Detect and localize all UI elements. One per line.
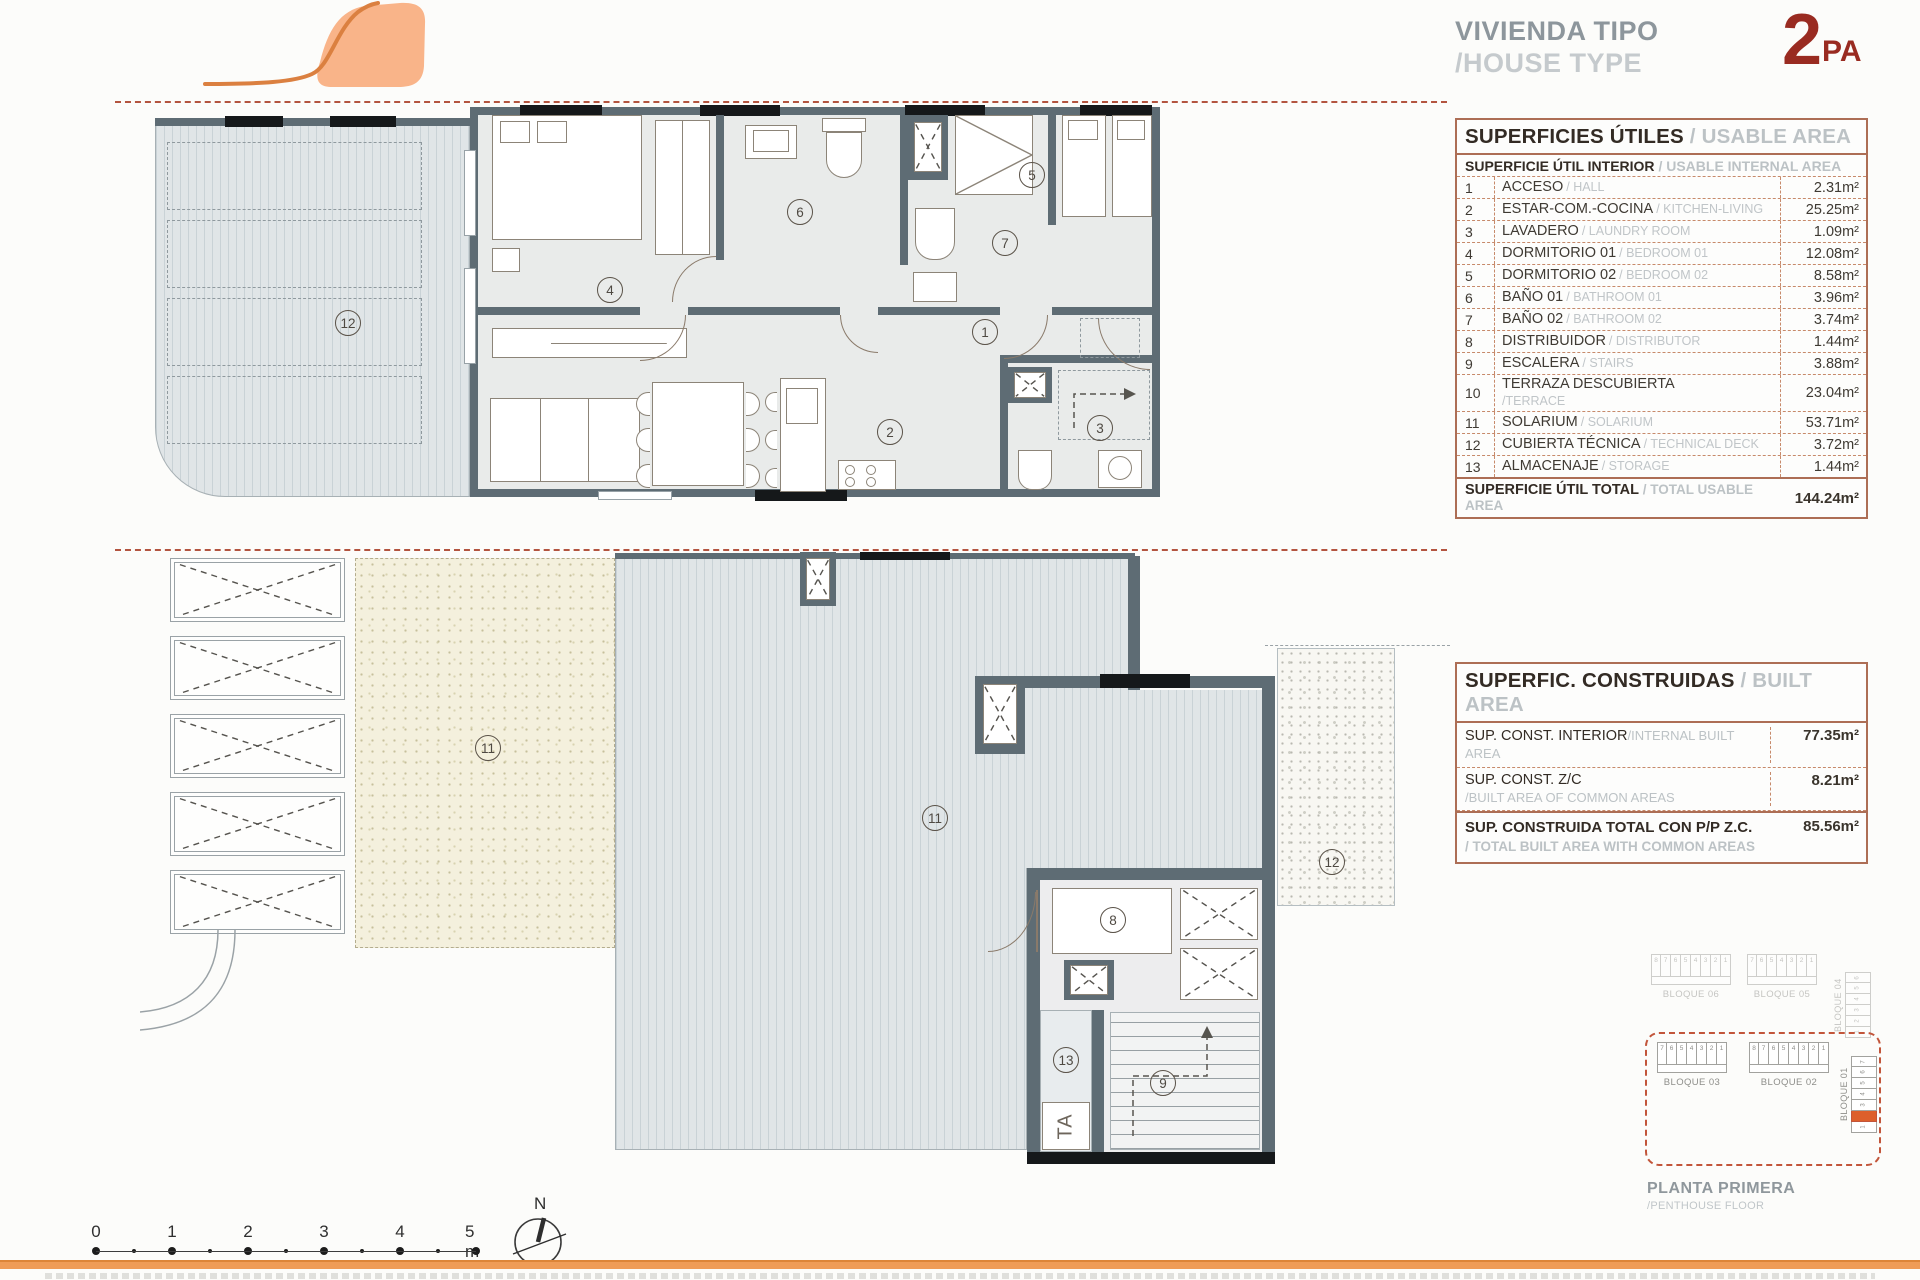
room-area: 25.25m²	[1780, 199, 1866, 220]
wall	[1027, 868, 1040, 1160]
unit-cell: 5	[1681, 954, 1691, 977]
room-badge-1: 1	[972, 319, 998, 345]
room-area: 2.31m²	[1780, 177, 1866, 198]
usable-area-row-13: 13ALMACENAJE/ STORAGE1.44m²	[1457, 456, 1866, 477]
unit-cell: 3	[1845, 1005, 1871, 1016]
solar-panel-outline	[167, 298, 422, 366]
scale-bar: 012345 m	[88, 1222, 498, 1262]
unit-cell: 3	[1799, 1042, 1809, 1065]
stair-arrow	[1115, 1018, 1255, 1146]
pergola-bay	[170, 870, 345, 934]
solarium-deck-area	[615, 690, 1263, 868]
window-band	[1100, 674, 1190, 688]
door-leaf	[1036, 890, 1038, 952]
house-type-title-en: /HOUSE TYPE	[1455, 48, 1642, 79]
wall	[1128, 556, 1140, 690]
pergola-bay-cross	[174, 796, 341, 852]
table-title-es: SUPERFICIES ÚTILES	[1465, 125, 1684, 148]
dining-chair	[746, 464, 760, 488]
unit-cell: 2	[1797, 954, 1807, 977]
key-plan-caption-es: PLANTA PRIMERA	[1647, 1180, 1795, 1198]
window	[464, 268, 476, 364]
usable-area-row-5: 5DORMITORIO 02/ BEDROOM 028.58m²	[1457, 265, 1866, 287]
unit-cell: 4	[1845, 994, 1871, 1005]
block-02: 87654321BLOQUE 02	[1749, 1042, 1829, 1088]
built-label: SUP. CONST. Z/C/BUILT AREA OF COMMON ARE…	[1457, 772, 1770, 806]
scale-tick-label: 0	[91, 1222, 100, 1242]
pergola-bay-cross	[174, 640, 341, 696]
room-badge-9: 9	[1150, 1070, 1176, 1096]
window-band	[905, 105, 985, 116]
stair-void-cross	[1180, 888, 1258, 940]
shaft-cross	[1070, 965, 1108, 995]
built-value: 77.35m²	[1770, 727, 1866, 763]
unit-cell: 5	[1851, 1078, 1877, 1089]
pergola-bay	[170, 636, 345, 700]
burner	[866, 477, 876, 487]
solarium-deck-area	[615, 558, 1135, 691]
shower	[955, 115, 1033, 195]
scale-tick-label: 2	[243, 1222, 252, 1242]
wall	[1027, 868, 1275, 880]
scale-line	[96, 1251, 476, 1252]
pergola-bay-cross	[174, 874, 341, 930]
row-number: 11	[1457, 412, 1495, 433]
pillow	[1117, 120, 1145, 140]
total-label-es: SUPERFICIE ÚTIL TOTAL	[1465, 482, 1639, 498]
unit-cell: 5	[1779, 1042, 1789, 1065]
block-label: BLOQUE 05	[1747, 989, 1817, 1000]
room-badge-11-sand: 11	[475, 735, 501, 761]
window-band	[225, 116, 283, 127]
pergola-bay	[170, 714, 345, 778]
key-plan-caption-en: /PENTHOUSE FLOOR	[1647, 1200, 1764, 1212]
unit-cell: 5	[1845, 983, 1871, 994]
washer-drum	[1108, 456, 1132, 480]
dining-chair	[746, 428, 760, 452]
row-number: 12	[1457, 434, 1495, 455]
ventilation-shaft	[908, 115, 948, 180]
wall	[155, 118, 470, 126]
bed	[492, 115, 642, 240]
bed	[1112, 115, 1152, 217]
usable-area-row-9: 9ESCALERA/ STAIRS3.88m²	[1457, 353, 1866, 375]
distributor-room	[1052, 888, 1172, 954]
wall	[1262, 676, 1275, 1160]
pillow	[1068, 120, 1098, 140]
usable-area-row-12: 12CUBIERTA TÉCNICA/ TECHNICAL DECK3.72m²	[1457, 434, 1866, 456]
row-number: 4	[1457, 243, 1495, 264]
usable-area-table: SUPERFICIES ÚTILES / USABLE AREA SUPERFI…	[1455, 118, 1868, 519]
wall-band	[1027, 1152, 1275, 1164]
unit-cell: 7	[1759, 1042, 1769, 1065]
room-name: LAVADERO/ LAUNDRY ROOM	[1495, 222, 1780, 241]
pillow	[537, 121, 567, 143]
room-name: ACCESO/ HALL	[1495, 178, 1780, 197]
door-arc	[1004, 315, 1048, 359]
built-label: SUP. CONST. INTERIOR/INTERNAL BUILT AREA	[1457, 727, 1770, 763]
usable-area-row-4: 4DORMITORIO 01/ BEDROOM 0112.08m²	[1457, 243, 1866, 265]
scale-tick-label: 1	[167, 1222, 176, 1242]
footer-bar	[0, 1260, 1920, 1269]
bathroom-sink	[745, 125, 797, 159]
wall	[1092, 1010, 1104, 1152]
room-badge-5: 5	[1019, 162, 1045, 188]
usable-area-rows: 1ACCESO/ HALL2.31m²2ESTAR-COM.-COCINA/ K…	[1457, 177, 1866, 477]
usable-area-total-row: SUPERFICIE ÚTIL TOTAL / TOTAL USABLE ARE…	[1457, 477, 1866, 517]
unit-cell: 6	[1671, 954, 1681, 977]
bed	[1062, 115, 1106, 217]
dining-chair	[636, 392, 650, 416]
bathroom-sink-basin	[753, 130, 789, 152]
chimney-shaft	[800, 552, 836, 606]
room-badge-8: 8	[1100, 907, 1126, 933]
room-area: 1.09m²	[1780, 221, 1866, 242]
unit-cell: 7	[1657, 1042, 1667, 1065]
unit-cell: 6	[1757, 954, 1767, 977]
table-title-es: SUPERFIC. CONSTRUIDAS	[1465, 669, 1735, 692]
nightstand	[492, 248, 520, 272]
dwelling-floor	[470, 107, 1160, 497]
block-label: BLOQUE 01	[1839, 1056, 1849, 1133]
window-band	[520, 105, 602, 116]
total-label-en: / TOTAL BUILT AREA WITH COMMON AREAS	[1465, 837, 1770, 856]
built-area-table: SUPERFIC. CONSTRUIDAS / BUILT AREA SUP. …	[1455, 662, 1868, 864]
room-badge-13: 13	[1053, 1047, 1079, 1073]
bar-stool	[765, 392, 777, 412]
total-value: 85.56m²	[1770, 818, 1866, 856]
room-name: SOLARIUM/ SOLARIUM	[1495, 413, 1780, 432]
window	[464, 150, 476, 236]
pergola-bay	[170, 558, 345, 622]
block-label: BLOQUE 02	[1749, 1077, 1829, 1088]
row-number: 2	[1457, 199, 1495, 220]
room-area: 53.71m²	[1780, 412, 1866, 433]
burner	[845, 465, 855, 475]
block-label: BLOQUE 06	[1651, 989, 1731, 1000]
cooktop	[838, 460, 896, 490]
room-area: 3.96m²	[1780, 287, 1866, 308]
usable-area-row-10: 10TERRAZA DESCUBIERTA/TERRACE23.04m²	[1457, 375, 1866, 412]
shaft-cross	[983, 684, 1017, 744]
bathroom-sink	[913, 272, 957, 302]
solar-panel-outline	[167, 220, 422, 288]
unit-cell: 6	[1769, 1042, 1779, 1065]
unit-band	[1651, 977, 1731, 985]
unit-cell: 3	[1787, 954, 1797, 977]
door-arc	[988, 892, 1036, 952]
dining-chair	[636, 464, 650, 488]
wall	[900, 115, 908, 265]
room-name: DORMITORIO 02/ BEDROOM 02	[1495, 266, 1780, 285]
unit-cell: 5	[1767, 954, 1777, 977]
wall	[478, 307, 640, 315]
room-area: 23.04m²	[1780, 375, 1866, 411]
house-type-code: 2 PA	[1782, 2, 1862, 78]
sofa	[490, 398, 640, 482]
stair-landing	[1058, 370, 1150, 440]
wall	[1025, 676, 1265, 688]
room-badge-6: 6	[787, 199, 813, 225]
door-arc	[840, 315, 878, 353]
usable-area-row-7: 7BAÑO 02/ BATHROOM 023.74m²	[1457, 309, 1866, 331]
solar-panel-outline	[167, 376, 422, 444]
house-type-suffix: PA	[1822, 26, 1861, 78]
row-number: 7	[1457, 309, 1495, 330]
unit-cell: 3	[1697, 1042, 1707, 1065]
wall	[878, 307, 1000, 315]
scale-tick-label: 5 m	[465, 1222, 487, 1262]
kitchen-island	[780, 378, 826, 492]
usable-area-row-3: 3LAVADERO/ LAUNDRY ROOM1.09m²	[1457, 221, 1866, 243]
site-key-plan: 87654321BLOQUE 06 7654321BLOQUE 05 BLOQU…	[1643, 928, 1915, 1233]
room-name: BAÑO 02/ BATHROOM 02	[1495, 310, 1780, 329]
north-label: N	[534, 1194, 546, 1213]
toilet-bowl	[826, 132, 862, 178]
built-area-rows: SUP. CONST. INTERIOR/INTERNAL BUILT AREA…	[1457, 723, 1866, 811]
row-number: 3	[1457, 221, 1495, 242]
room-name: BAÑO 01/ BATHROOM 01	[1495, 288, 1780, 307]
room-area: 8.58m²	[1780, 265, 1866, 286]
wall	[1000, 360, 1008, 497]
window-band	[700, 105, 780, 116]
scale-tick-label: 3	[319, 1222, 328, 1242]
room-name: ESTAR-COM.-COCINA/ KITCHEN-LIVING	[1495, 200, 1780, 219]
dining-chair	[746, 392, 760, 416]
water-tank: TA	[1042, 1102, 1090, 1150]
room-badge-12: 12	[1319, 849, 1345, 875]
wall	[716, 115, 724, 260]
room-area: 3.88m²	[1780, 353, 1866, 374]
wall	[1000, 355, 1160, 363]
house-type-title-es: VIVIENDA TIPO	[1455, 16, 1659, 47]
technical-deck-area	[155, 120, 470, 497]
wall	[1052, 307, 1152, 315]
window-band	[755, 490, 847, 501]
unit-cell: 1	[1717, 1042, 1727, 1065]
dining-chair	[636, 428, 650, 452]
shaft-cross	[1014, 372, 1046, 398]
table-title-en: / USABLE AREA	[1690, 125, 1851, 148]
pergola-bay-cross	[174, 562, 341, 618]
unit-band	[1657, 1065, 1727, 1073]
unit-cell: 8	[1651, 954, 1661, 977]
window-band	[330, 116, 396, 127]
toilet-bowl	[1018, 450, 1052, 490]
room-area: 3.74m²	[1780, 309, 1866, 330]
solarium-deck-area	[615, 868, 1027, 1150]
technical-deck-gravel	[1277, 648, 1395, 906]
door-arc	[672, 256, 716, 302]
window-band	[860, 552, 950, 560]
total-label-es: SUP. CONSTRUIDA TOTAL CON P/P Z.C.	[1465, 819, 1752, 836]
plan-sheet: VIVIENDA TIPO /HOUSE TYPE 2 PA	[0, 0, 1920, 1280]
block-03: 7654321BLOQUE 03	[1657, 1042, 1727, 1088]
road-curve	[140, 930, 260, 1050]
room-badge-3: 3	[1087, 415, 1113, 441]
pergola-bay	[170, 792, 345, 856]
developer-logo	[200, 0, 430, 88]
room-name: TERRAZA DESCUBIERTA/TERRACE	[1495, 375, 1780, 411]
toilet	[822, 118, 866, 132]
unit-cell: 3	[1851, 1100, 1877, 1111]
row-number: 6	[1457, 287, 1495, 308]
unit-cell: 7	[1851, 1056, 1877, 1067]
burner	[866, 465, 876, 475]
unit-cell: 2	[1711, 954, 1721, 977]
unit-band	[1749, 1065, 1829, 1073]
unit-cell: 1	[1819, 1042, 1829, 1065]
unit-cell: 6	[1667, 1042, 1677, 1065]
burner	[845, 477, 855, 487]
ventilation-shaft	[1064, 960, 1114, 1000]
bar-stool	[765, 468, 777, 488]
room-badge-4: 4	[597, 277, 623, 303]
bar-stool	[765, 430, 777, 450]
room-badge-11-deck: 11	[922, 805, 948, 831]
wall	[688, 307, 840, 315]
built-area-row: SUP. CONST. Z/C/BUILT AREA OF COMMON ARE…	[1457, 768, 1866, 811]
unit-cell: 1	[1807, 954, 1817, 977]
room-badge-2: 2	[877, 419, 903, 445]
built-area-table-title: SUPERFIC. CONSTRUIDAS / BUILT AREA	[1457, 664, 1866, 723]
toilet-bowl	[915, 208, 955, 260]
table-subtitle-es: SUPERFICIE ÚTIL INTERIOR	[1465, 158, 1655, 174]
unit-cell: 2	[1845, 1016, 1871, 1027]
block-01: BLOQUE 01765431	[1839, 1056, 1877, 1133]
unit-cell: 1	[1851, 1122, 1877, 1133]
door-arc	[640, 315, 686, 361]
usable-area-table-subtitle: SUPERFICIE ÚTIL INTERIOR / USABLE INTERN…	[1457, 155, 1866, 177]
stair-arrow	[1062, 372, 1146, 436]
row-number: 13	[1457, 456, 1495, 477]
pergola-bay-cross	[174, 718, 341, 774]
unit-cell: 5	[1677, 1042, 1687, 1065]
solar-panel-outline	[167, 142, 422, 210]
usable-area-row-8: 8DISTRIBUIDOR/ DISTRIBUTOR1.44m²	[1457, 331, 1866, 353]
room-name: CUBIERTA TÉCNICA/ TECHNICAL DECK	[1495, 435, 1780, 454]
room-area: 1.44m²	[1780, 456, 1866, 477]
block-label: BLOQUE 04	[1833, 972, 1843, 1038]
room-name: ALMACENAJE/ STORAGE	[1495, 457, 1780, 476]
property-line	[115, 101, 1447, 103]
unit-cell: 7	[1661, 954, 1671, 977]
wardrobe	[655, 120, 710, 255]
storage-room	[1040, 1010, 1092, 1152]
usable-area-table-title: SUPERFICIES ÚTILES / USABLE AREA	[1457, 120, 1866, 155]
row-number: 8	[1457, 331, 1495, 352]
unit-band	[1747, 977, 1817, 985]
property-line	[115, 549, 1447, 551]
scale-tick-label: 4	[395, 1222, 404, 1242]
window	[598, 491, 672, 500]
unit-cell: 2	[1707, 1042, 1717, 1065]
pergola-column	[170, 558, 345, 935]
unit-cell: 6	[1845, 972, 1871, 983]
entry-mat	[1080, 318, 1140, 358]
unit-cell: 4	[1851, 1089, 1877, 1100]
unit-cell: 3	[1701, 954, 1711, 977]
wall	[1048, 115, 1056, 225]
row-number: 10	[1457, 375, 1495, 411]
usable-area-row-11: 11SOLARIUM/ SOLARIUM53.71m²	[1457, 412, 1866, 434]
total-value: 144.24m²	[1770, 490, 1866, 507]
row-number: 1	[1457, 177, 1495, 198]
footer-fine-print	[45, 1273, 1875, 1279]
room-name: ESCALERA/ STAIRS	[1495, 354, 1780, 373]
block-05: 7654321BLOQUE 05	[1747, 954, 1817, 1000]
unit-cell: 6	[1851, 1067, 1877, 1078]
unit-cell: 4	[1789, 1042, 1799, 1065]
shaft-cross	[914, 122, 942, 172]
block-04: BLOQUE 04654321	[1833, 972, 1871, 1038]
row-number: 5	[1457, 265, 1495, 286]
unit-cell: 2	[1809, 1042, 1819, 1065]
pillow	[500, 121, 530, 143]
room-area: 3.72m²	[1780, 434, 1866, 455]
built-value: 8.21m²	[1770, 772, 1866, 806]
block-06: 87654321BLOQUE 06	[1651, 954, 1731, 1000]
tank-label: TA	[1054, 1113, 1077, 1139]
room-badge-7: 7	[992, 230, 1018, 256]
distributor-floor	[1040, 880, 1262, 1152]
built-area-row: SUP. CONST. INTERIOR/INTERNAL BUILT AREA…	[1457, 723, 1866, 768]
solarium-sand-area	[355, 558, 615, 948]
room-area: 12.08m²	[1780, 243, 1866, 264]
usable-area-row-2: 2ESTAR-COM.-COCINA/ KITCHEN-LIVING25.25m…	[1457, 199, 1866, 221]
usable-area-row-6: 6BAÑO 01/ BATHROOM 013.96m²	[1457, 287, 1866, 309]
dining-table	[652, 382, 744, 486]
room-area: 1.44m²	[1780, 331, 1866, 352]
house-type-number: 2	[1782, 2, 1822, 78]
wall	[615, 553, 1135, 559]
boundary-dashed	[1265, 645, 1450, 646]
room-name: DORMITORIO 01/ BEDROOM 01	[1495, 244, 1780, 263]
built-area-total-row: SUP. CONSTRUIDA TOTAL CON P/P Z.C. / TOT…	[1457, 811, 1866, 862]
kitchen-sink	[786, 388, 818, 424]
shaft-cross	[806, 558, 830, 600]
ventilation-shaft	[1008, 367, 1052, 403]
unit-cell: 4	[1777, 954, 1787, 977]
unit-cell: 4	[1691, 954, 1701, 977]
unit-cell: 4	[1687, 1042, 1697, 1065]
block-label: BLOQUE 03	[1657, 1077, 1727, 1088]
window-band	[1080, 105, 1152, 116]
unit-cell: 1	[1721, 954, 1731, 977]
unit-cell	[1851, 1111, 1877, 1122]
room-badge-12: 12	[335, 310, 361, 336]
stair-treads	[1110, 1012, 1260, 1150]
row-number: 9	[1457, 353, 1495, 374]
entry-door-arc	[1098, 318, 1150, 370]
stair-void-cross	[1180, 948, 1258, 1000]
chimney-shaft	[975, 676, 1025, 754]
sideboard	[492, 328, 687, 358]
unit-cell: 7	[1747, 954, 1757, 977]
washing-machine	[1098, 450, 1142, 488]
usable-area-row-1: 1ACCESO/ HALL2.31m²	[1457, 177, 1866, 199]
room-name: DISTRIBUIDOR/ DISTRIBUTOR	[1495, 332, 1780, 351]
unit-cell: 8	[1749, 1042, 1759, 1065]
table-subtitle-en: / USABLE INTERNAL AREA	[1658, 158, 1841, 174]
